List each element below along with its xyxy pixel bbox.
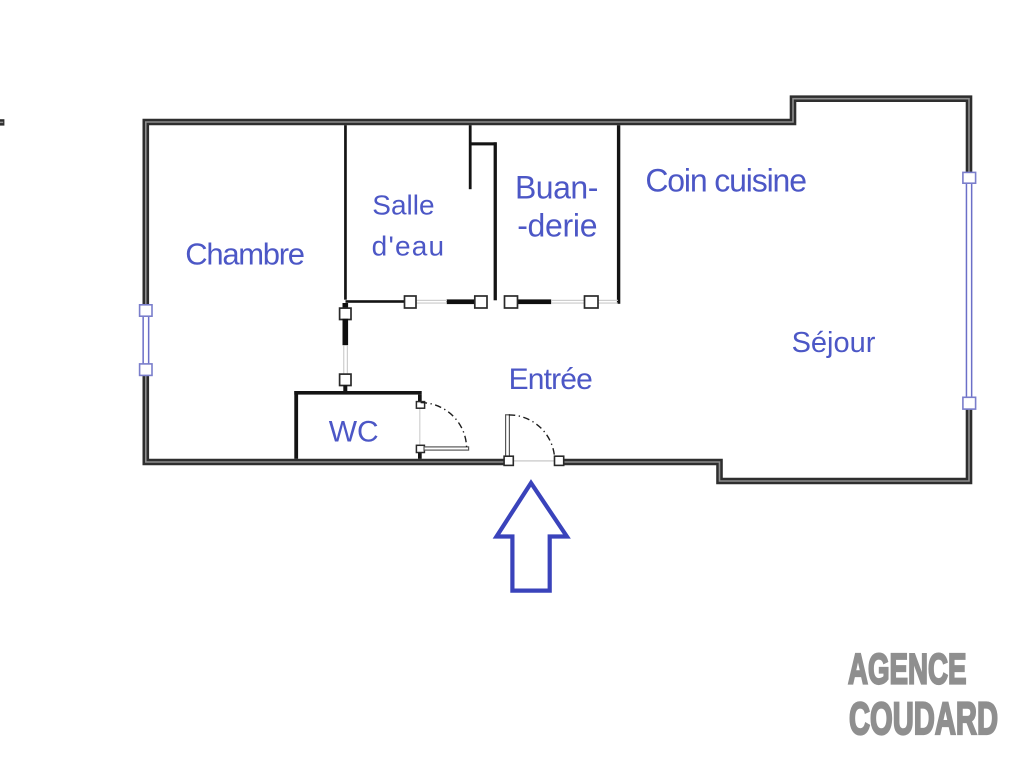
svg-text:Séjour: Séjour bbox=[792, 327, 876, 359]
svg-text:Entrée: Entrée bbox=[509, 363, 592, 396]
svg-text:COUDARD: COUDARD bbox=[849, 693, 998, 744]
svg-text:Chambre: Chambre bbox=[185, 237, 303, 272]
svg-text:-derie: -derie bbox=[517, 207, 597, 243]
svg-text:d'eau: d'eau bbox=[372, 230, 446, 261]
svg-text:Buan-: Buan- bbox=[515, 170, 598, 206]
svg-text:AGENCE: AGENCE bbox=[848, 646, 967, 694]
svg-text:Salle: Salle bbox=[372, 190, 434, 221]
svg-text:WC: WC bbox=[329, 416, 379, 449]
svg-text:Coin cuisine: Coin cuisine bbox=[645, 163, 806, 199]
